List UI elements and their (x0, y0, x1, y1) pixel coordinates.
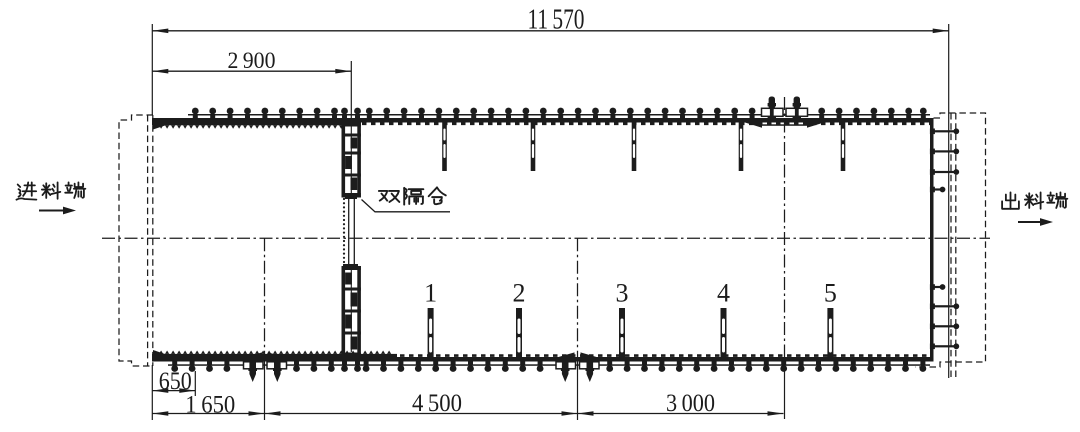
svg-text:11 570: 11 570 (528, 5, 585, 36)
svg-text:1 650: 1 650 (185, 392, 235, 419)
svg-text:4 500: 4 500 (412, 390, 462, 417)
svg-text:3: 3 (616, 279, 629, 308)
svg-text:5: 5 (824, 279, 837, 308)
svg-text:2 900: 2 900 (228, 48, 276, 73)
svg-text:2: 2 (513, 279, 526, 308)
svg-text:4: 4 (717, 279, 730, 308)
svg-text:3 000: 3 000 (666, 390, 715, 417)
svg-text:1: 1 (424, 279, 437, 308)
